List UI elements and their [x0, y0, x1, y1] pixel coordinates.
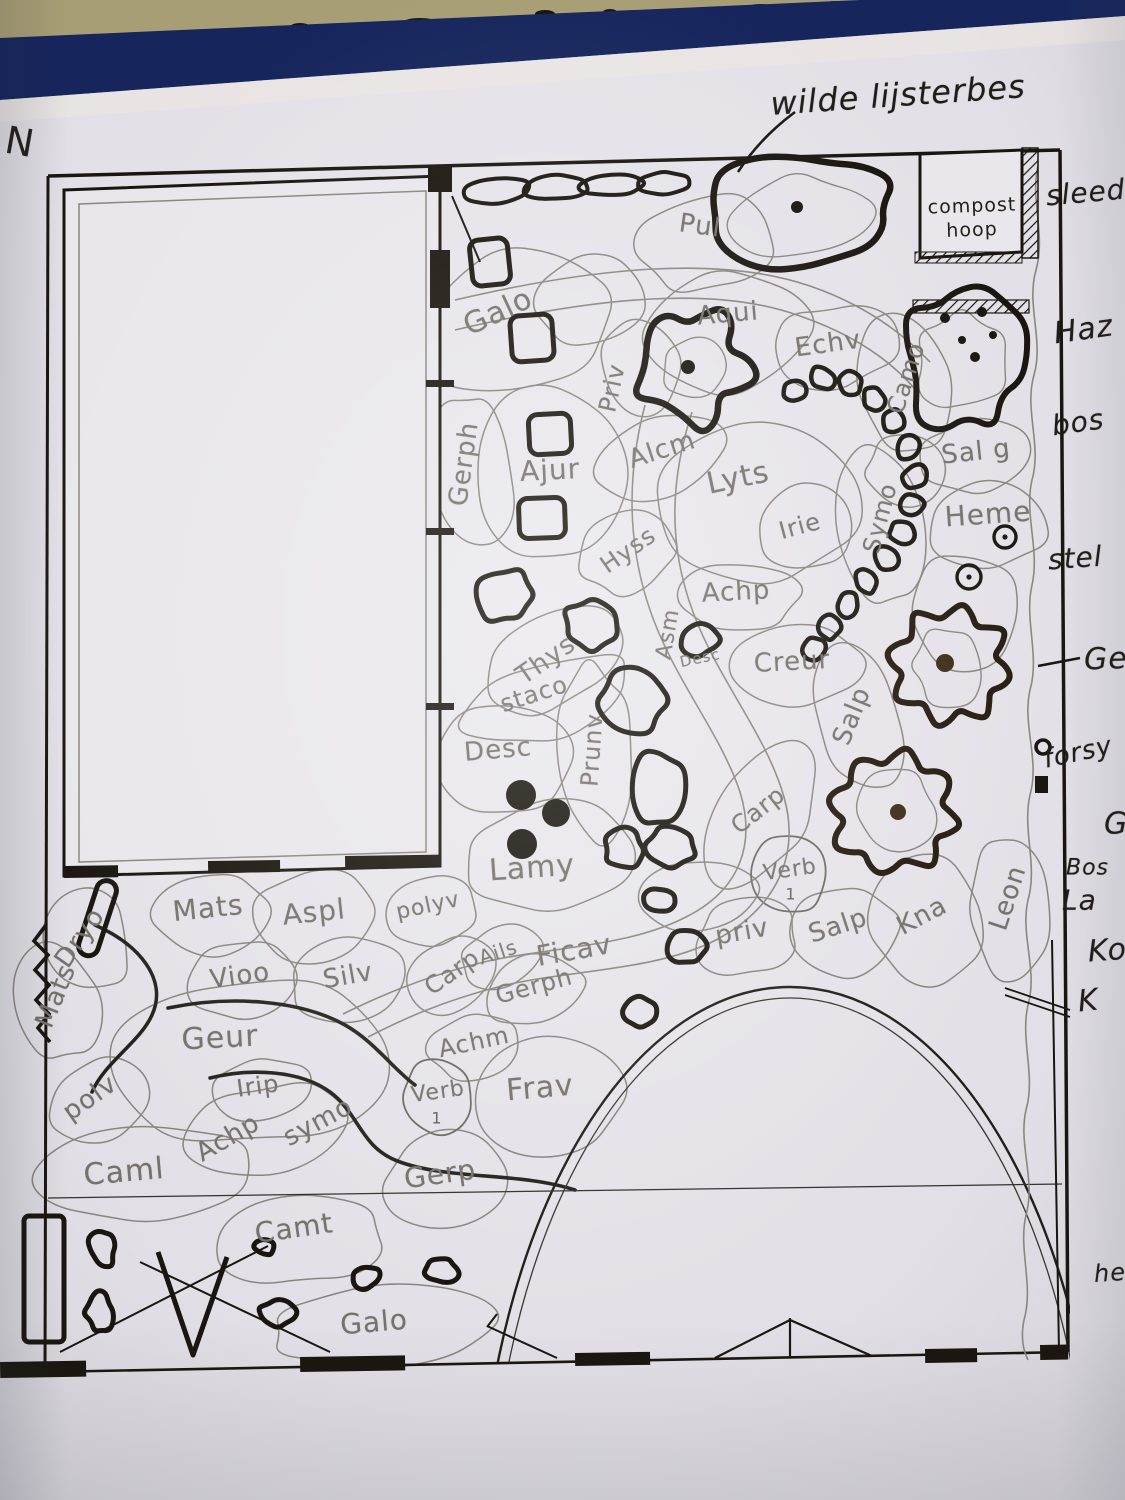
- margin-note-ge: Ge: [1083, 641, 1125, 678]
- plant-label-galo: Galo: [339, 1303, 409, 1342]
- boundary-wall-segment: [575, 1352, 650, 1366]
- wall-tick: [426, 528, 454, 535]
- hazel-dot: [989, 331, 997, 339]
- wall-tick: [426, 380, 454, 387]
- shrub-center-dot: [681, 360, 695, 374]
- building-wall-segment: [345, 855, 440, 868]
- margin-note-ko: Ko: [1087, 932, 1125, 970]
- compost-hatched-wall: [1022, 148, 1038, 258]
- hazel-dot: [977, 307, 987, 317]
- compost-label-line2: hoop: [946, 218, 998, 242]
- plant-label-aqui: Aqui: [696, 296, 760, 331]
- plant-label-frav: Frav: [505, 1068, 575, 1109]
- compost-label-line1: compost: [927, 193, 1016, 218]
- door-jamb: [428, 166, 452, 192]
- plant-label-lamy: Lamy: [488, 848, 576, 889]
- boundary-wall-segment: [300, 1355, 405, 1372]
- hazel-dot: [940, 313, 950, 323]
- plant-label-ajur: Ajur: [519, 452, 581, 488]
- verb-count-mark: 1: [431, 1109, 442, 1128]
- building-wall-segment: [64, 865, 118, 878]
- boundary-wall-segment: [925, 1348, 977, 1363]
- plant-label-prunv: Prunv: [575, 712, 608, 787]
- plant-label-achp: Achp: [701, 575, 771, 609]
- plant-label-aspl: Aspl: [281, 892, 347, 931]
- wall-tick: [426, 703, 454, 710]
- compost-hatched-wall: [915, 252, 1022, 263]
- boundary-wall-segment: [1040, 1345, 1068, 1360]
- border-post-mark: [1035, 776, 1048, 793]
- plant-circle-dot: [1002, 534, 1007, 539]
- margin-note-stel: stel: [1047, 540, 1104, 577]
- plant-circle-dot: [966, 574, 971, 579]
- building-wall-segment: [208, 860, 280, 873]
- filled-plant-dot: [542, 799, 570, 827]
- building-outline: [64, 176, 440, 876]
- flower-center-dot: [890, 804, 906, 820]
- margin-note-he: he: [1093, 1258, 1125, 1288]
- plant-label-caml: Caml: [82, 1151, 166, 1193]
- plant-label-heme: Heme: [944, 495, 1033, 534]
- margin-note-k: K: [1076, 982, 1100, 1019]
- filled-plant-dot: [506, 780, 536, 810]
- margin-note-la: La: [1062, 884, 1097, 917]
- rowan-center-dot: [791, 201, 803, 213]
- boundary-wall-segment: [0, 1361, 86, 1378]
- plant-label-pul: Pul: [677, 208, 723, 244]
- plant-label-creur: Creur: [753, 645, 831, 679]
- plant-label-desc: Desc: [463, 732, 533, 768]
- garden-plan-photo: GaloPulPrivAquiEchvCamoGerphAjurAlcmLyts…: [0, 0, 1125, 1500]
- hazel-dot: [970, 352, 980, 362]
- verb-count-mark: 1: [785, 885, 796, 904]
- plant-label-geur: Geur: [181, 1019, 260, 1058]
- margin-note-g: G: [1104, 807, 1125, 842]
- margin-note-bos: Bos: [1066, 856, 1109, 881]
- hazel-dot: [958, 336, 966, 344]
- plant-label-irip: Irip: [235, 1069, 281, 1103]
- margin-note-sleed: sleed: [1045, 173, 1125, 213]
- door-jamb: [430, 250, 450, 308]
- flower-center-dot: [936, 654, 954, 672]
